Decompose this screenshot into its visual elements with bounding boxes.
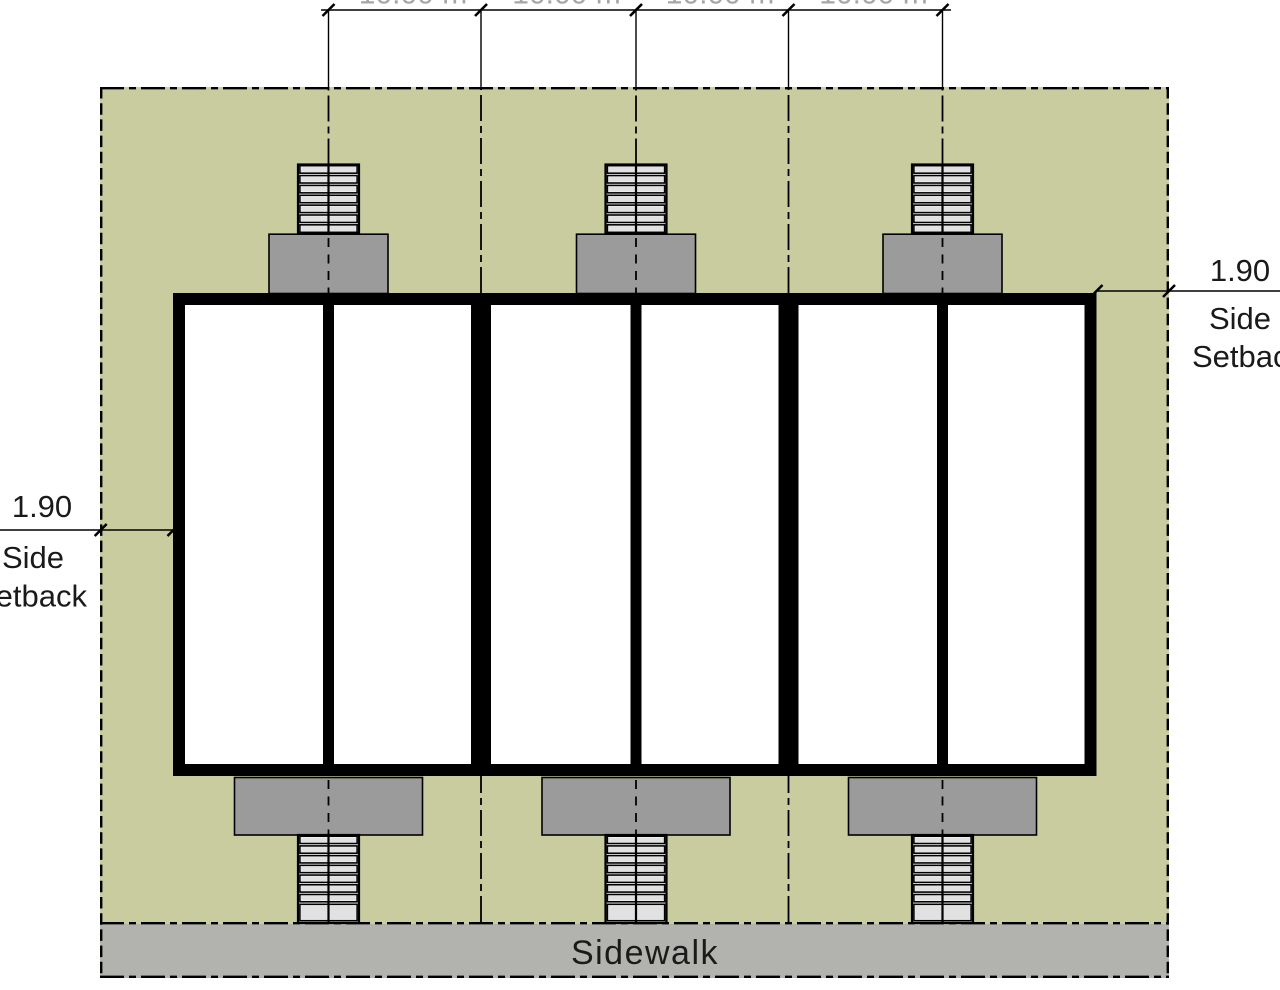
svg-text:Setback: Setback <box>0 579 88 614</box>
svg-text:Side: Side <box>1209 301 1271 336</box>
svg-text:Setback: Setback <box>1192 339 1280 374</box>
svg-text:1.90: 1.90 <box>1210 253 1270 288</box>
svg-text:10.00 m: 10.00 m <box>666 0 774 11</box>
svg-text:10.00 m: 10.00 m <box>819 0 927 11</box>
svg-text:10.00 m: 10.00 m <box>359 0 467 11</box>
svg-text:1.90: 1.90 <box>12 489 72 524</box>
svg-text:10.00 m: 10.00 m <box>512 0 620 11</box>
svg-text:Side: Side <box>2 540 64 575</box>
svg-text:Sidewalk: Sidewalk <box>571 934 719 972</box>
